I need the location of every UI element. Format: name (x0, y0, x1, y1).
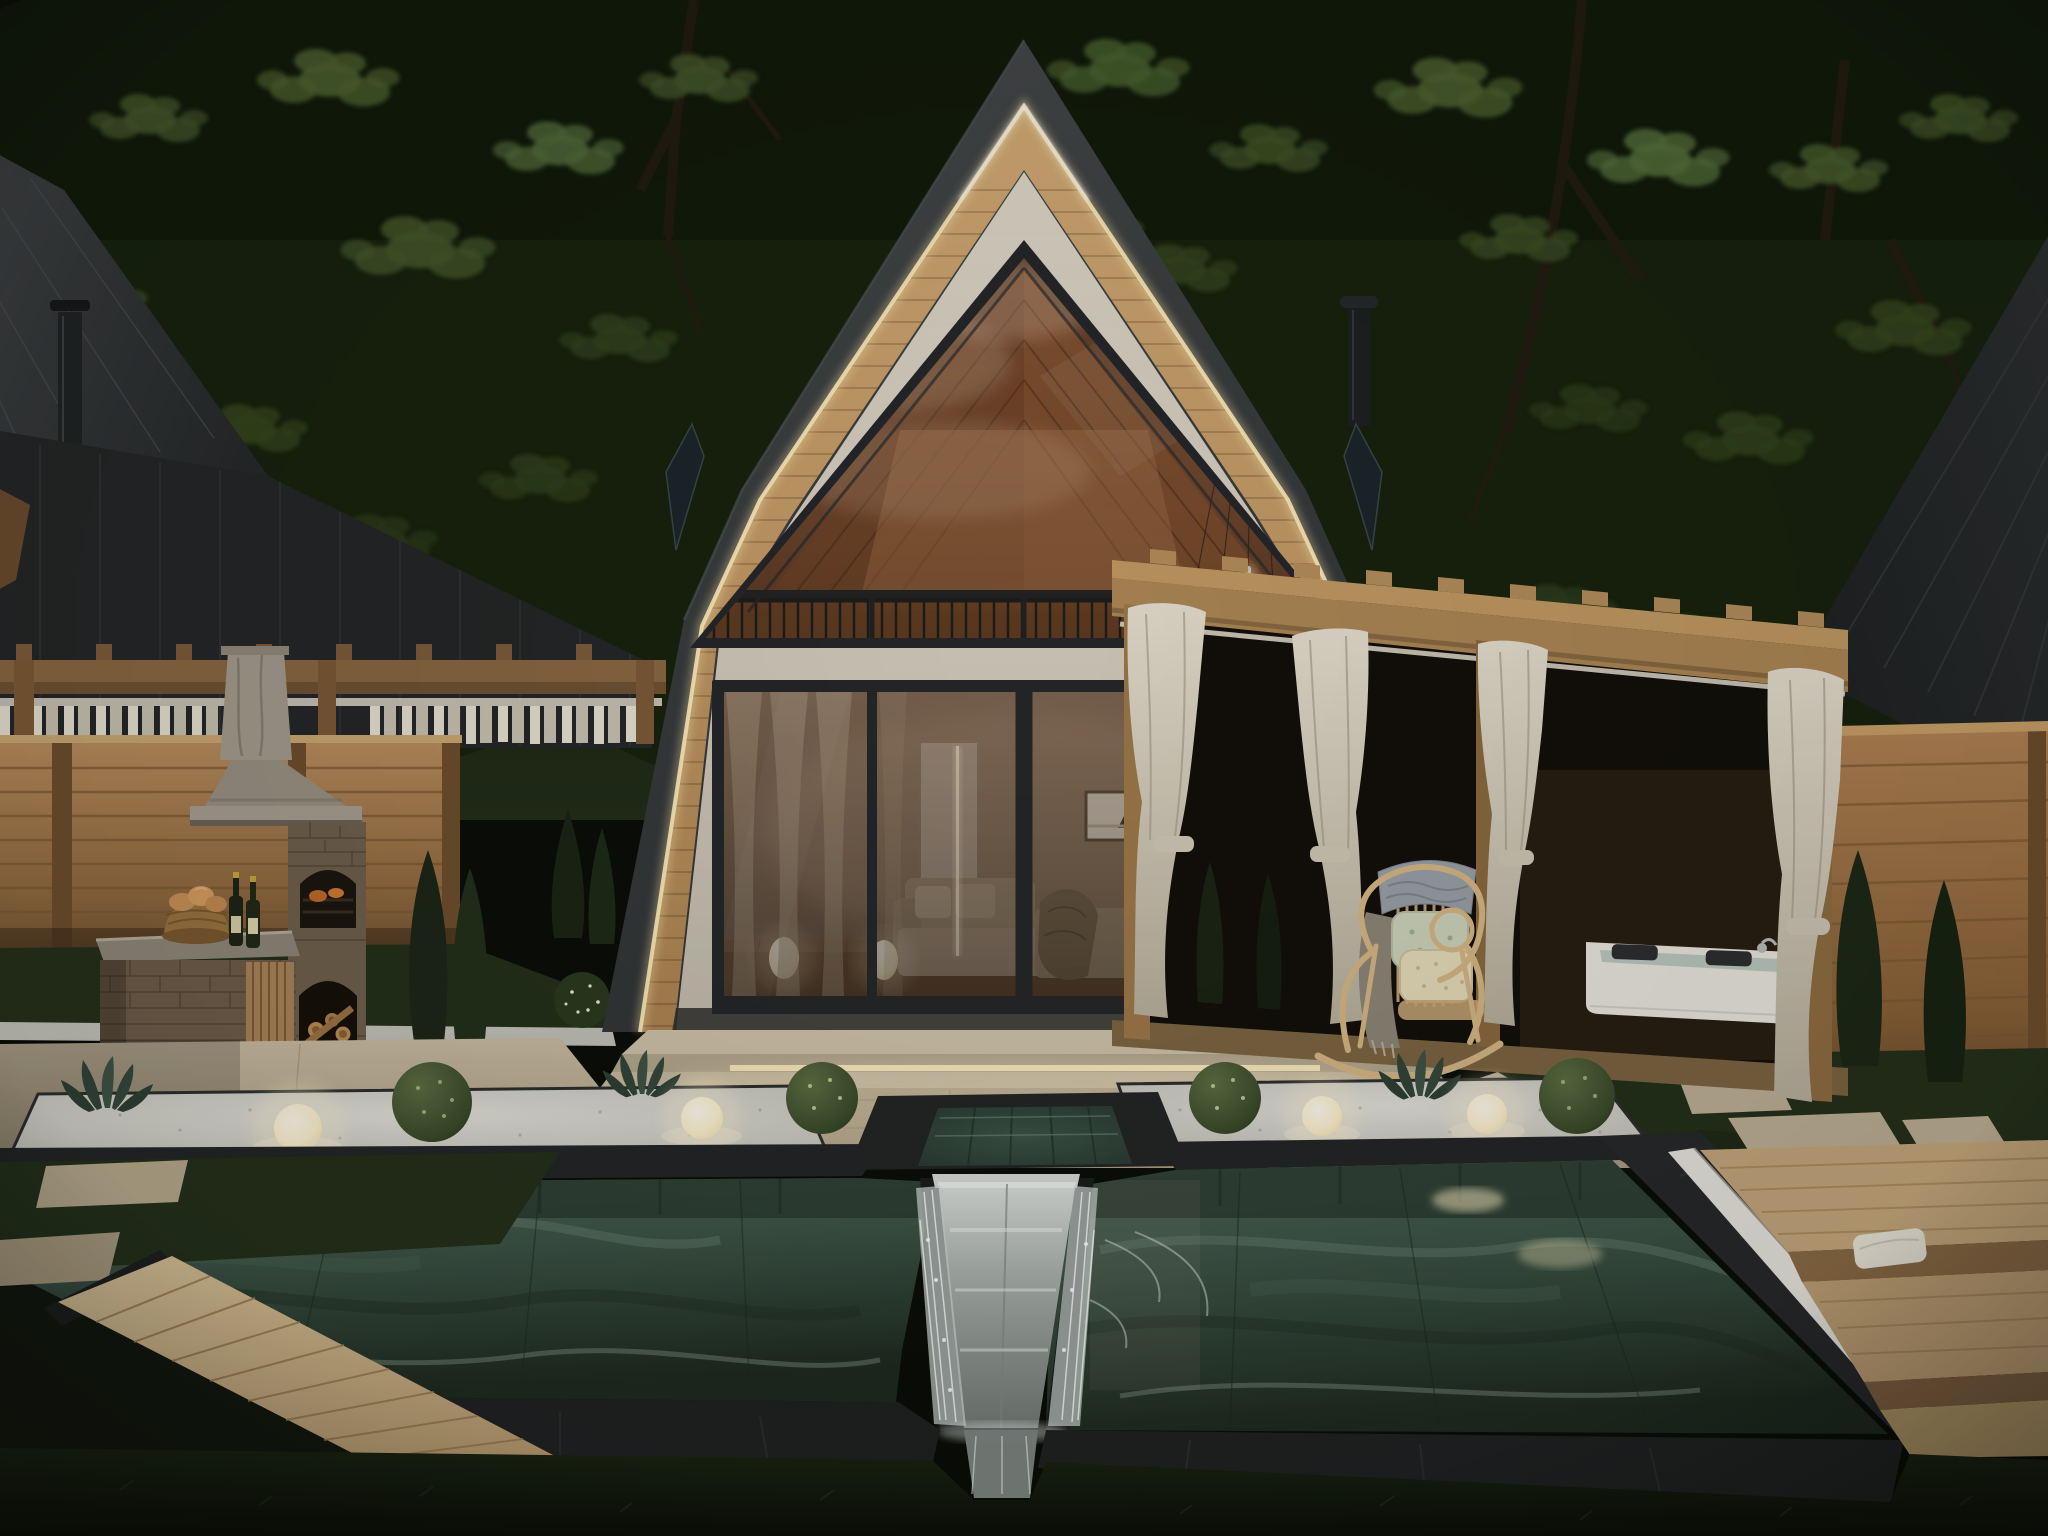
dusk-tint (0, 0, 2048, 1536)
scene-canvas: Modern A-frame house backyard at dusk (0, 0, 2048, 1536)
backyard-scene: Modern A-frame house backyard at dusk (0, 0, 2048, 1536)
